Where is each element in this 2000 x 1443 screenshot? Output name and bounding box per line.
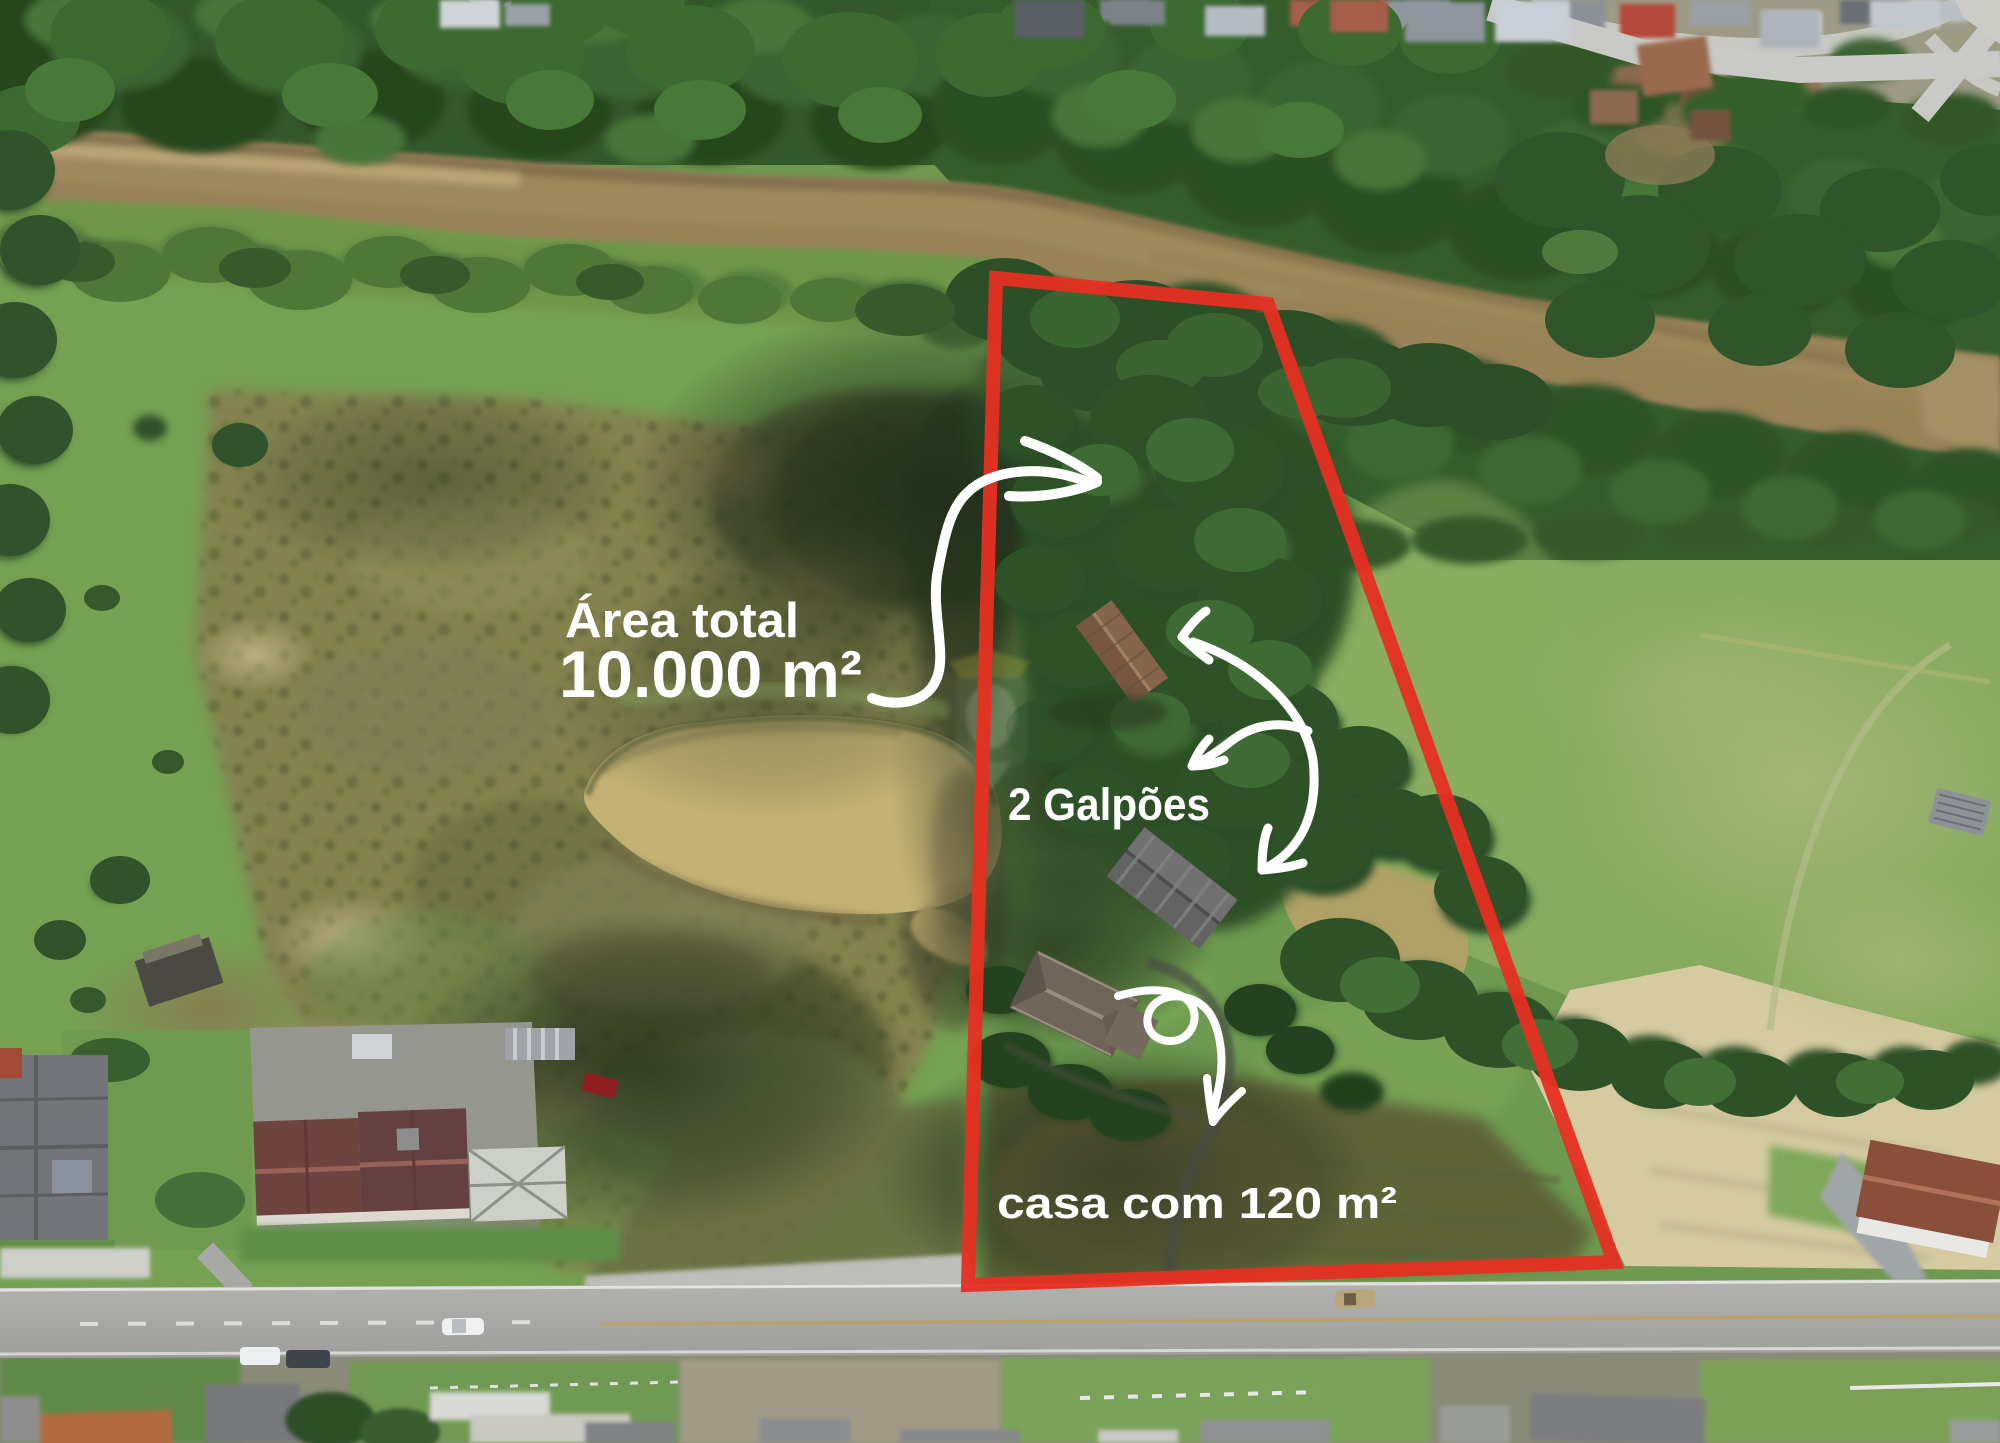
- svg-text:2 Galpões: 2 Galpões: [1008, 779, 1210, 830]
- svg-text:casa com 120 m²: casa com 120 m²: [997, 1179, 1397, 1228]
- svg-text:10.000 m²: 10.000 m²: [559, 637, 862, 711]
